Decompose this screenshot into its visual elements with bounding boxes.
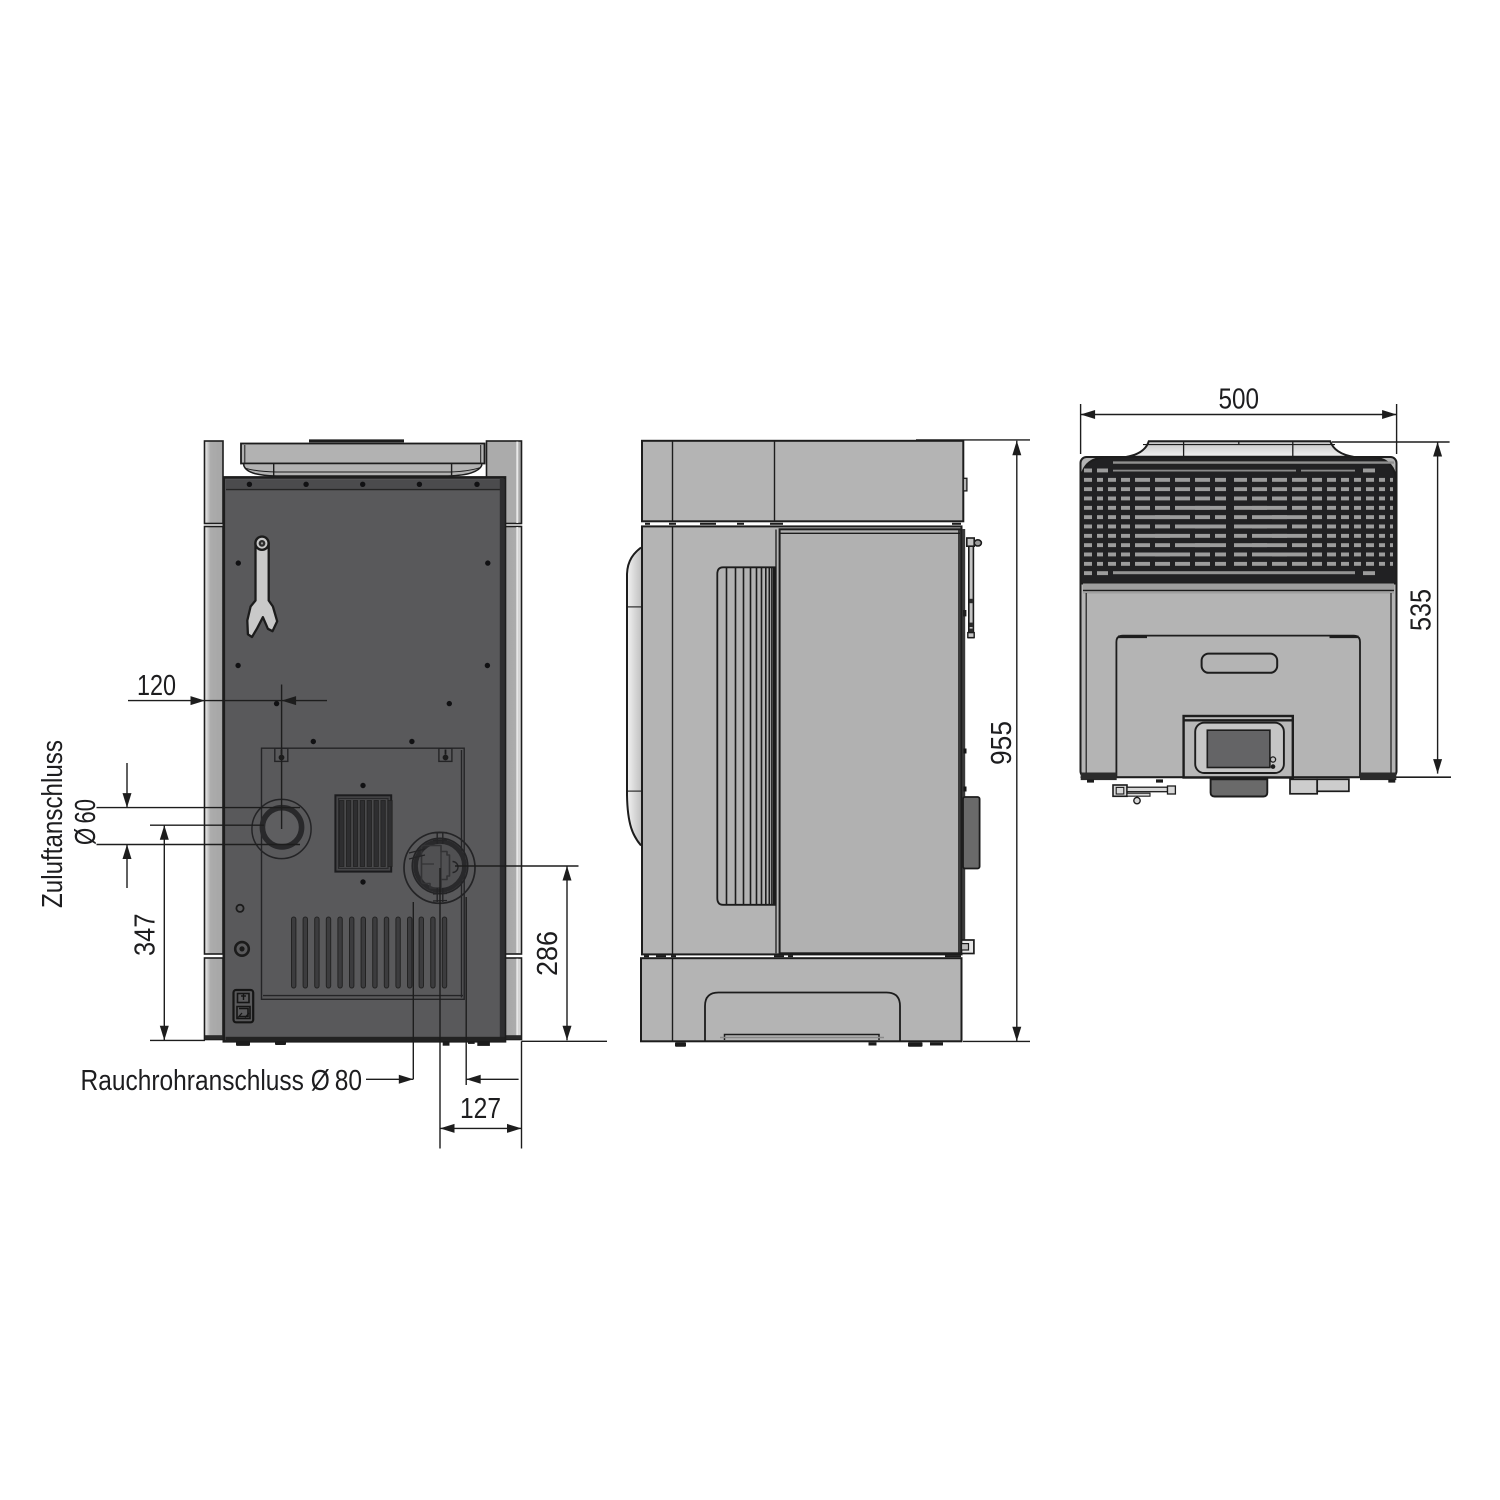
svg-text:Zuluftanschluss: Zuluftanschluss <box>37 740 69 908</box>
svg-text:Rauchrohranschluss Ø 80: Rauchrohranschluss Ø 80 <box>81 1065 363 1097</box>
svg-text:955: 955 <box>986 721 1018 765</box>
svg-text:Ø 60: Ø 60 <box>70 799 102 845</box>
svg-text:347: 347 <box>130 914 162 957</box>
svg-text:127: 127 <box>460 1093 501 1125</box>
svg-text:286: 286 <box>532 931 564 976</box>
svg-text:120: 120 <box>137 670 176 702</box>
svg-text:500: 500 <box>1219 384 1260 416</box>
svg-text:535: 535 <box>1406 589 1438 631</box>
